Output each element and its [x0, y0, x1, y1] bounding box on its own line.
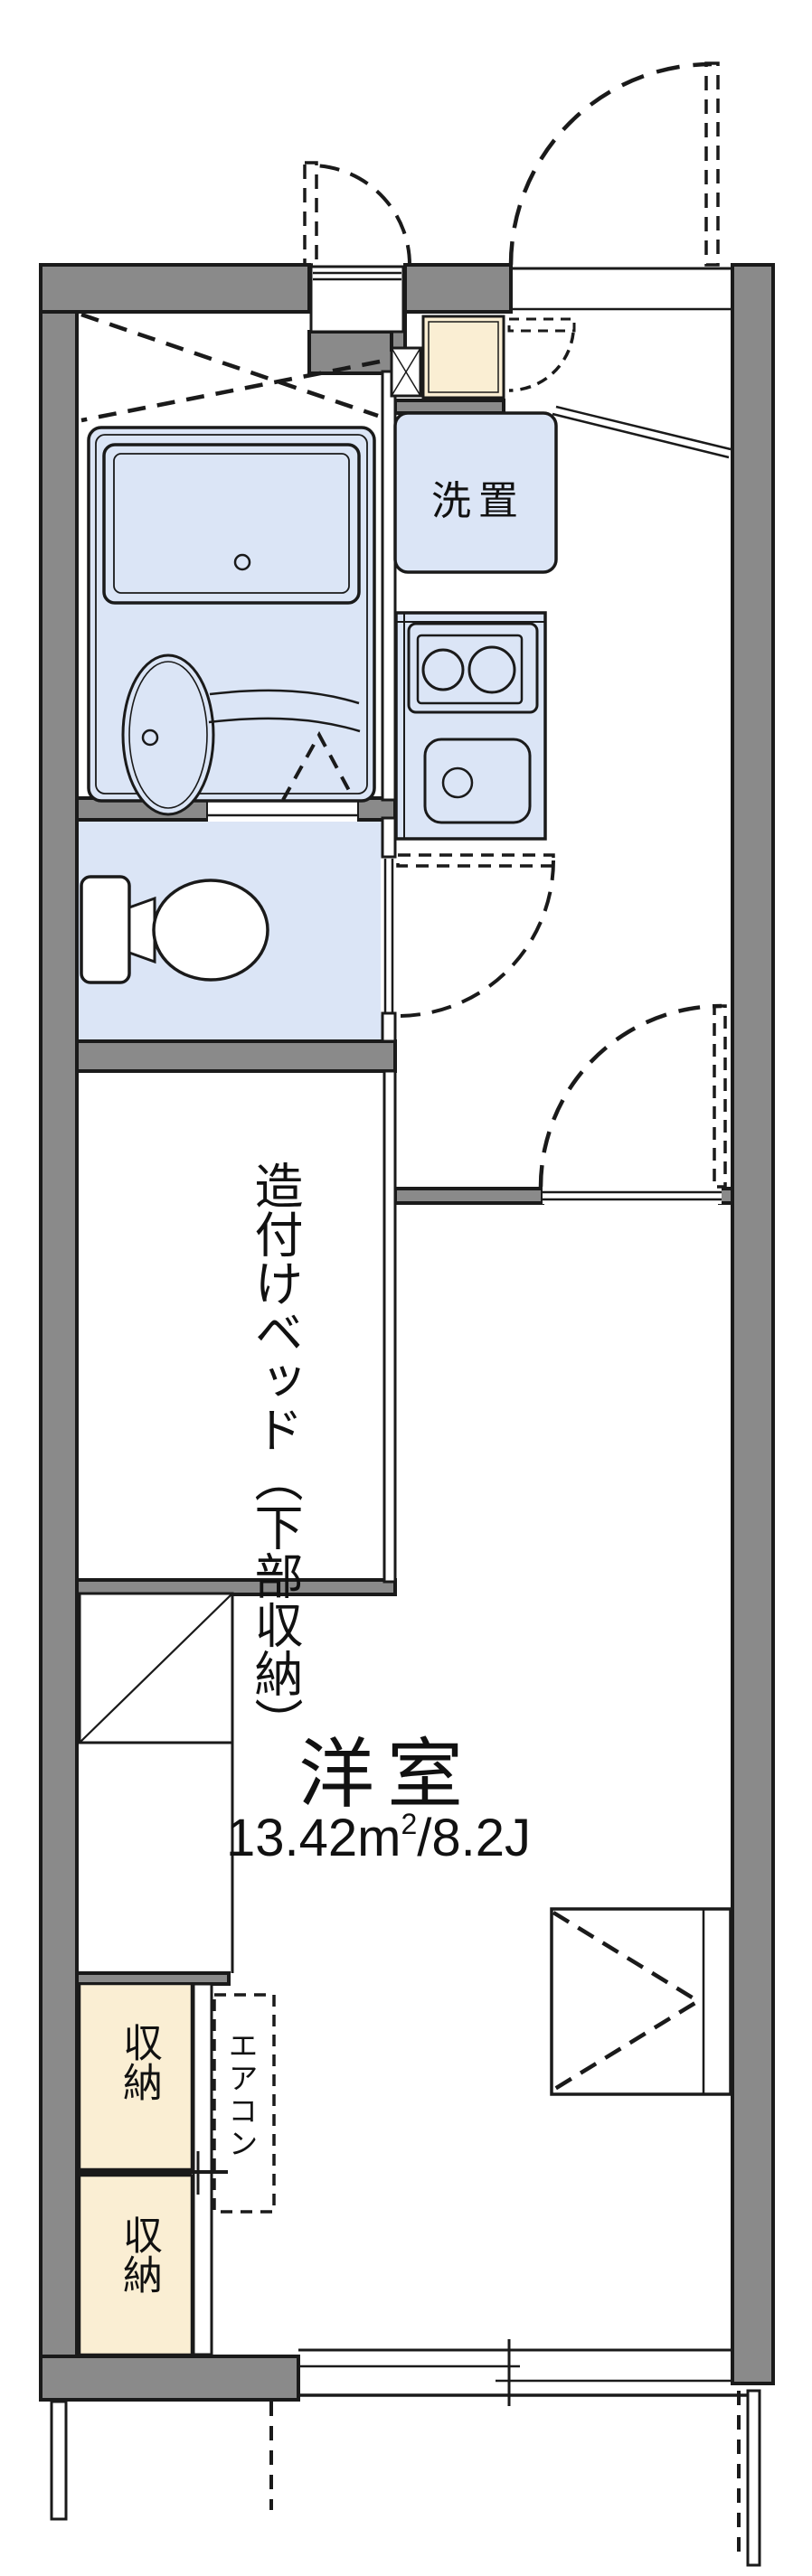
- built-in-bed-label: 造付けベッド（下部収納）: [152, 1161, 311, 1585]
- entrance-door-swing: [511, 64, 712, 265]
- area-exponent: 2: [401, 1808, 417, 1840]
- basin-faucet: [143, 730, 157, 745]
- toilet-door-swing: [398, 860, 553, 1016]
- ceiling-hatch-x: [81, 362, 380, 420]
- storage-lower-label: 収納: [112, 2214, 161, 2294]
- wash-basin: [123, 655, 213, 814]
- entrance-door-leaf: [706, 63, 718, 265]
- room-door-swing: [541, 1006, 722, 1187]
- toilet-seat: [129, 898, 155, 962]
- balcony-window: [298, 2339, 760, 2406]
- service-door-recess: [311, 267, 403, 332]
- area-unit: m: [357, 1809, 401, 1867]
- bed-label-line2: （下部収納）: [247, 1453, 301, 1746]
- room-name-label: 洋室: [298, 1714, 533, 1823]
- tub-drain: [235, 555, 250, 569]
- area-value: 13.42: [226, 1809, 357, 1867]
- room-area-label: 13.42m2/8.2J: [226, 1808, 531, 1868]
- floor-plan-graphic: [0, 0, 812, 2576]
- entrance-step-edge: [556, 407, 731, 449]
- bathroom: [81, 315, 380, 814]
- hall-door-swing: [509, 333, 573, 390]
- shoe-cabinet: [423, 316, 504, 398]
- entrance-threshold: [513, 263, 730, 314]
- hall-door-leaf: [509, 319, 574, 331]
- toilet-bowl: [154, 880, 268, 980]
- service-door-leaf: [305, 163, 316, 265]
- storage-upper-label: 収納: [112, 2022, 161, 2101]
- bathtub: [104, 445, 359, 603]
- service-door-swing: [310, 165, 410, 265]
- aircon-label: エアコン: [228, 2030, 262, 2160]
- toilet-door-leaf: [398, 855, 553, 866]
- balcony-outline-marks: [52, 2391, 760, 2565]
- floor-plan: 洗置 造付けベッド（下部収納） 洋室 13.42m2/8.2J 収納 収納 エア…: [0, 0, 812, 2576]
- toilet-tank: [81, 877, 129, 982]
- bed-label-line1: 造付けベッド: [247, 1161, 301, 1453]
- room-door-leaf: [714, 1006, 725, 1187]
- washer-label: 洗置: [399, 468, 558, 526]
- area-jyo: /8.2J: [417, 1809, 531, 1867]
- toilet: [81, 877, 268, 982]
